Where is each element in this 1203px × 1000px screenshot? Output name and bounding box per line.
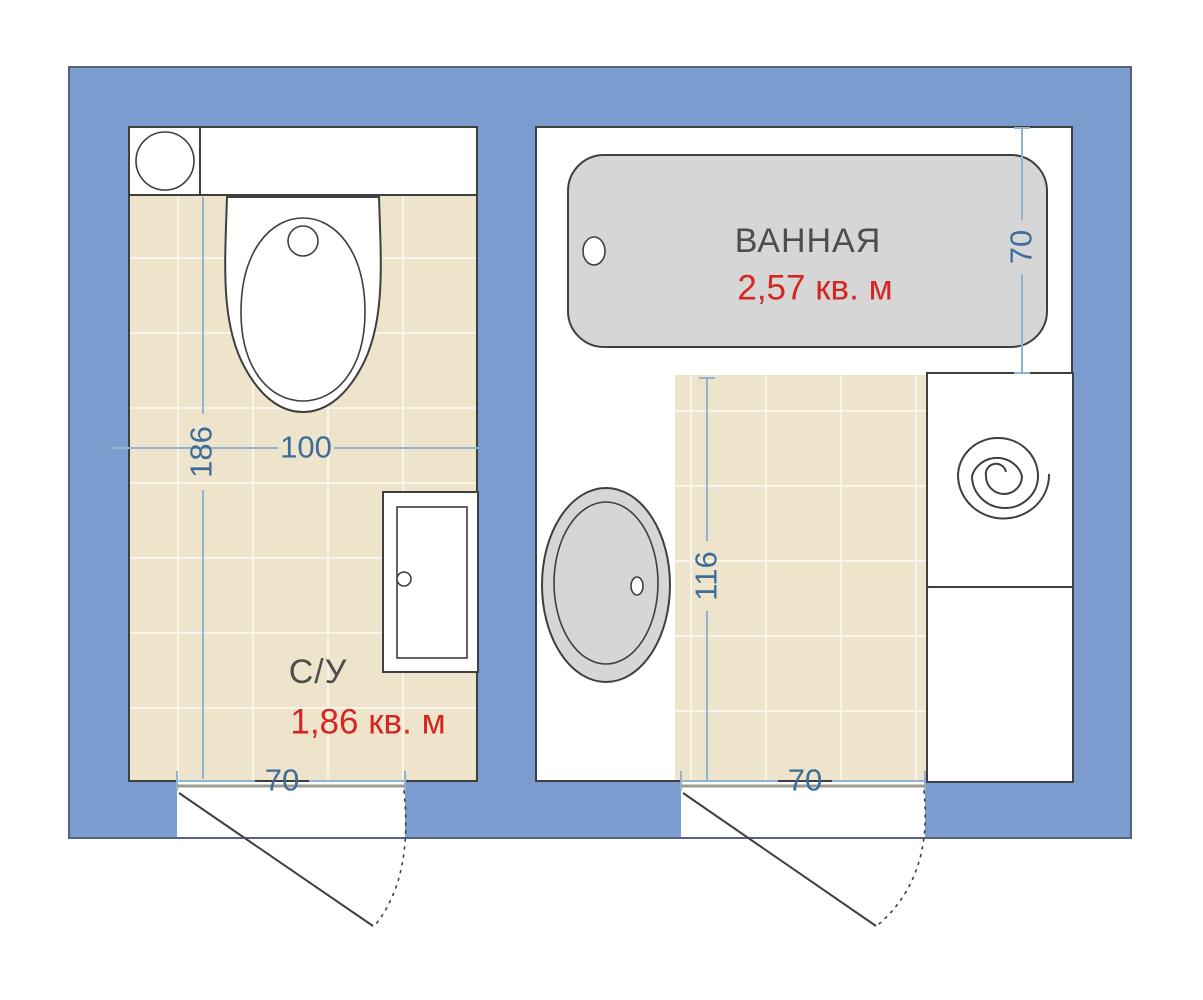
toilet-room-label: С/У	[289, 655, 348, 689]
shelf-divider	[199, 128, 201, 196]
dim-inner-height-116: 116	[691, 551, 722, 600]
dim-bath-width-70: 70	[1006, 230, 1037, 264]
toilet-floor-tiles	[130, 196, 476, 780]
floor-plan: С/У 1,86 кв. м ВАННАЯ 2,57 кв. м 186 100…	[0, 0, 1203, 1000]
dim-width-100: 100	[280, 432, 332, 463]
dim-bathroom-door-70: 70	[788, 765, 822, 796]
bathroom-area-label: 2,57 кв. м	[737, 271, 892, 306]
dim-height-186: 186	[186, 426, 217, 478]
cistern-shelf	[130, 128, 476, 196]
toilet-area-label: 1,86 кв. м	[290, 705, 445, 740]
bathroom-label: ВАННАЯ	[735, 224, 882, 258]
dim-toilet-door-70: 70	[265, 765, 299, 796]
